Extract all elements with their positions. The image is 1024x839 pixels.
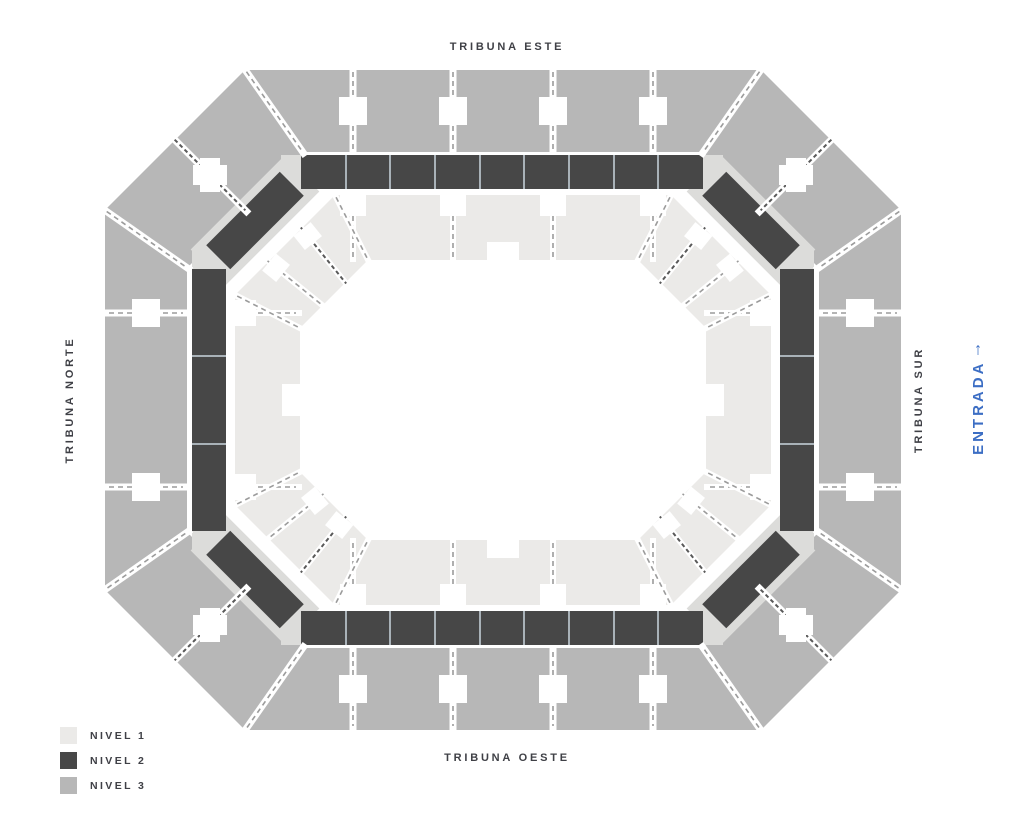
nivel2-left-band xyxy=(192,269,226,531)
up-arrow-icon: ↑ xyxy=(974,339,983,359)
tribuna-oeste-label: TRIBUNA OESTE xyxy=(444,752,570,764)
nivel2-top-band xyxy=(301,155,703,189)
arena-seating-map xyxy=(0,0,1024,839)
seating-map-page: TRIBUNA ESTE TRIBUNA OESTE TRIBUNA NORTE… xyxy=(0,0,1024,839)
nivel2-swatch xyxy=(60,752,77,769)
legend-item-nivel1: NIVEL 1 xyxy=(60,727,146,744)
nivel1-label: NIVEL 1 xyxy=(90,730,146,742)
nivel2-label: NIVEL 2 xyxy=(90,755,146,767)
tribuna-norte-label: TRIBUNA NORTE xyxy=(64,336,76,463)
nivel3-label: NIVEL 3 xyxy=(90,780,146,792)
legend: NIVEL 1 NIVEL 2 NIVEL 3 xyxy=(60,727,146,802)
legend-item-nivel3: NIVEL 3 xyxy=(60,777,146,794)
nivel2-bottom-band xyxy=(301,611,703,645)
nivel3-swatch xyxy=(60,777,77,794)
entrada-text: ENTRADA xyxy=(970,361,987,455)
legend-item-nivel2: NIVEL 2 xyxy=(60,752,146,769)
tribuna-este-label: TRIBUNA ESTE xyxy=(450,41,564,53)
nivel2-right-band xyxy=(780,269,814,531)
entrada-label: ENTRADA↑ xyxy=(968,345,988,455)
nivel1-swatch xyxy=(60,727,77,744)
tribuna-sur-label: TRIBUNA SUR xyxy=(913,347,925,453)
